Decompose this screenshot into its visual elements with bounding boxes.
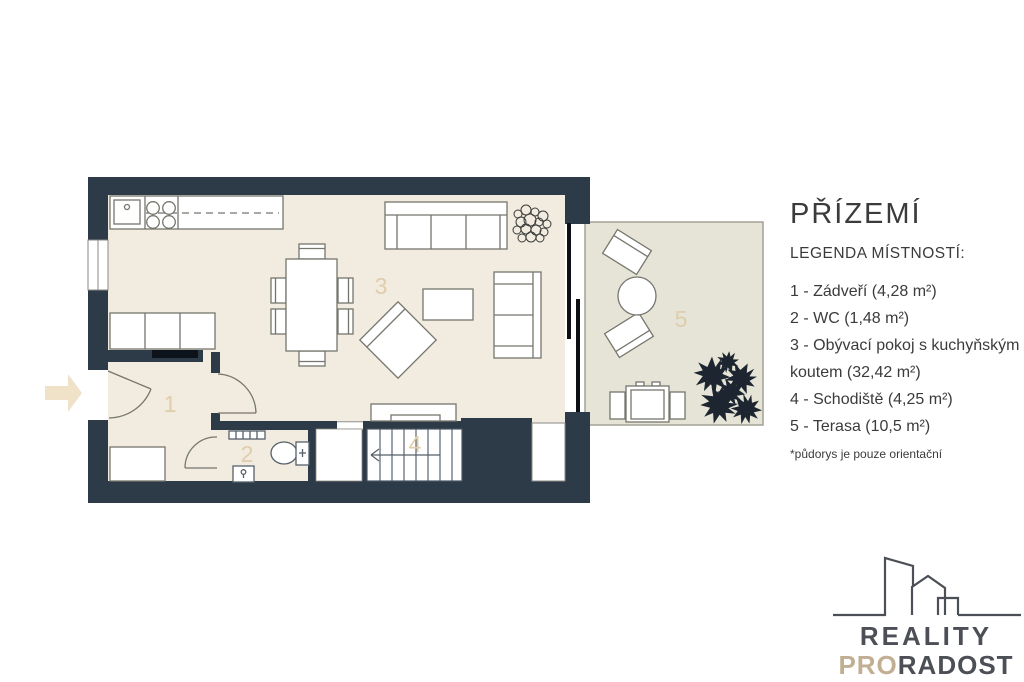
legend-footnote: *půdorys je pouze orientační: [790, 447, 1024, 461]
window-bottom-right: [532, 423, 565, 481]
logo-proradost: PRORADOST: [830, 650, 1022, 681]
kitchen-counter: [110, 196, 283, 229]
sliding-door: [567, 223, 580, 412]
terrace-table: [618, 277, 656, 315]
legend-item: 5 - Terasa (10,5 m²): [790, 413, 1024, 440]
toilet-icon: [271, 442, 309, 465]
dining-table: [286, 259, 337, 351]
wc-sink-icon: [233, 466, 254, 482]
floorplan-page: 1 2 3 4 5 PŘÍZEMÍ LEGENDA MÍSTNOSTÍ: 1 -…: [0, 0, 1024, 682]
wall-lintel: [152, 350, 198, 358]
logo-pro: PRO: [838, 650, 897, 680]
coffee-table: [423, 289, 473, 320]
legend-item: 4 - Schodiště (4,25 m²): [790, 386, 1024, 413]
tv-bench: [371, 404, 456, 421]
legend-item: 1 - Zádveří (4,28 m²): [790, 278, 1024, 305]
legend-heading: LEGENDA MÍSTNOSTÍ:: [790, 245, 1024, 263]
room-number-living: 3: [375, 273, 388, 299]
radiator-icon: [229, 431, 265, 439]
sofa-small: [494, 272, 541, 358]
sideboard: [110, 313, 215, 349]
room-number-stairs: 4: [409, 431, 422, 457]
entrance-opening: [88, 370, 108, 420]
room-number-wc: 2: [241, 441, 254, 467]
legend-item: 2 - WC (1,48 m²): [790, 305, 1024, 332]
legend-panel: PŘÍZEMÍ LEGENDA MÍSTNOSTÍ: 1 - Zádveří (…: [790, 198, 1024, 461]
legend-item: 3 - Obývací pokoj s kuchyňským koutem (3…: [790, 332, 1024, 386]
legend-items: 1 - Zádveří (4,28 m²) 2 - WC (1,48 m²) 3…: [790, 278, 1024, 440]
room-number-hall: 1: [164, 391, 177, 417]
hall-closet: [110, 447, 165, 481]
window-left: [88, 240, 108, 290]
tv-icon: [391, 415, 440, 421]
logo-reality: REALITY: [830, 621, 1022, 652]
stair-landing: [316, 429, 362, 481]
room-number-terrace: 5: [675, 306, 688, 332]
logo-skyline-icon: [833, 558, 1021, 615]
sofa-large: [385, 202, 507, 249]
page-title: PŘÍZEMÍ: [790, 198, 1024, 231]
kitchen-sink-icon: [114, 200, 140, 224]
logo-radost: RADOST: [898, 650, 1014, 680]
entry-arrow-icon: [45, 374, 82, 412]
